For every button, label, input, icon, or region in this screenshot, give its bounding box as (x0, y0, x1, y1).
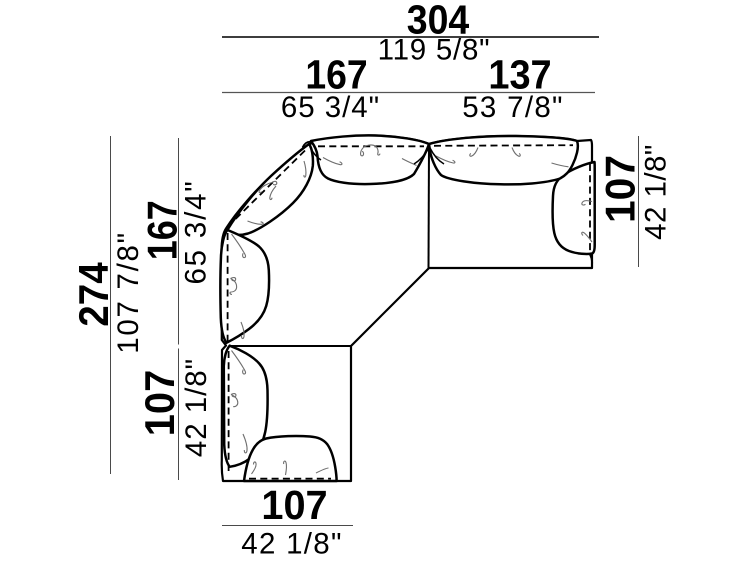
svg-text:42 1/8": 42 1/8" (241, 528, 342, 561)
svg-text:42 1/8": 42 1/8" (640, 144, 673, 240)
svg-text:53 7/8": 53 7/8" (462, 91, 564, 124)
svg-text:107: 107 (136, 370, 183, 437)
svg-text:107: 107 (261, 482, 327, 528)
svg-text:42 1/8": 42 1/8" (180, 358, 213, 457)
svg-text:65 3/4": 65 3/4" (281, 91, 380, 124)
svg-text:274: 274 (70, 262, 117, 327)
svg-text:65 3/4": 65 3/4" (180, 179, 213, 284)
svg-text:119 5/8": 119 5/8" (378, 34, 491, 67)
svg-text:107: 107 (597, 155, 644, 223)
